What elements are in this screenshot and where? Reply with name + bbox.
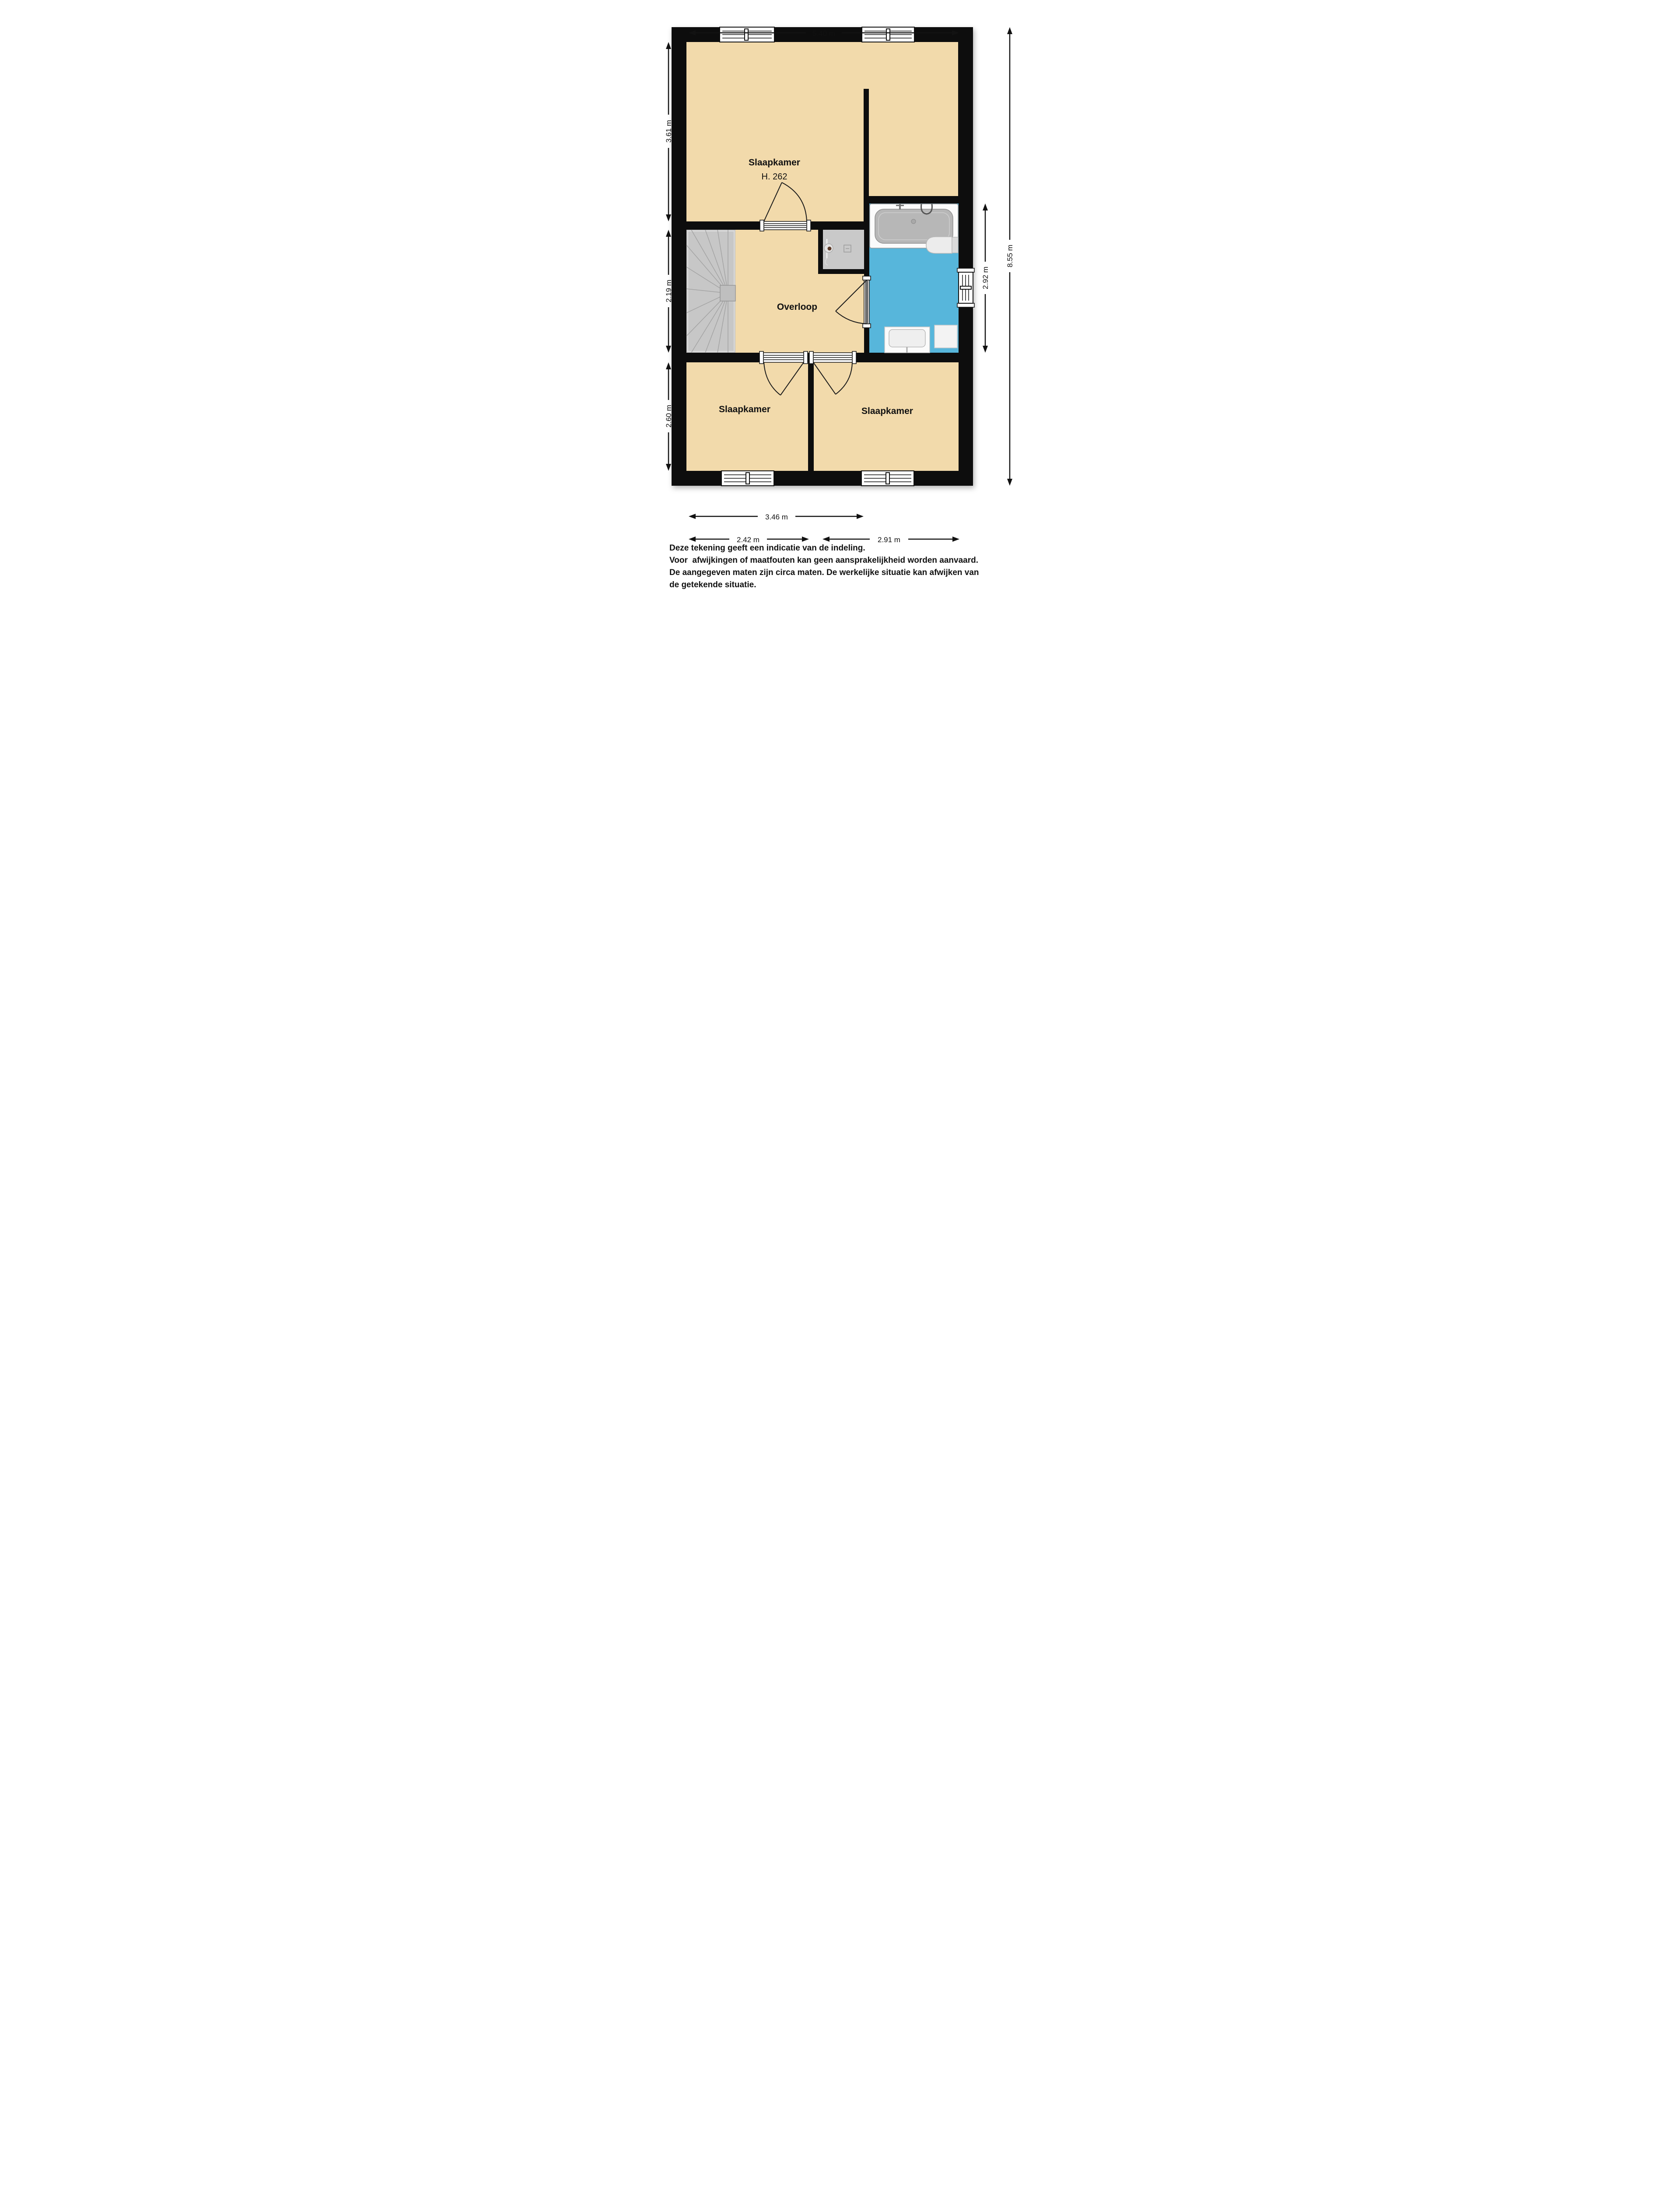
- washbasin: [885, 327, 930, 353]
- dim-bottom-left-total: 3.46 m: [689, 513, 864, 521]
- dim-left-top-label: 3.61 m: [665, 120, 673, 143]
- dim-bottom-left: 2.42 m: [689, 536, 809, 544]
- dim-right-bath-label: 2.92 m: [981, 266, 990, 289]
- bedroom-main-label: Slaapkamer: [749, 158, 800, 168]
- shower-head-center: [828, 247, 832, 251]
- dim-right-total: 8.55 m: [1006, 27, 1014, 486]
- bedroom-left-floor: [686, 362, 808, 471]
- toilet: [926, 237, 958, 253]
- dim-top-width-label: 5.40 m: [812, 29, 835, 38]
- landing-label: Overloop: [777, 302, 817, 312]
- window-bottom-right: [861, 471, 914, 486]
- wall-shower-left: [818, 230, 823, 269]
- bedroom-main-height-note: H. 262: [762, 172, 787, 182]
- staircase-landing: [720, 285, 735, 301]
- footer-line-3: De aangegeven maten zijn circa maten. De…: [669, 568, 979, 577]
- footer-line-2: Voor afwijkingen of maatfouten kan geen …: [669, 556, 978, 565]
- wall-bathroom-left-upper: [864, 230, 869, 260]
- footer-line-4: de getekende situatie.: [669, 580, 756, 589]
- toilet-bowl-icon: [926, 237, 952, 253]
- dim-left-middle-label: 2.19 m: [665, 280, 673, 302]
- wall-bedroom-divider: [864, 89, 869, 196]
- footer-line-1: Deze tekening geeft een indicatie van de…: [669, 543, 865, 553]
- bedroom-main-floor-left: [686, 196, 864, 221]
- dim-bottom-left-label: 2.42 m: [737, 536, 759, 544]
- dim-right-bath: 2.92 m: [981, 203, 990, 353]
- dim-bottom-left-total-label: 3.46 m: [765, 513, 788, 521]
- wall-shower-bottom: [818, 269, 864, 274]
- wall-bottom-bedrooms-divider: [808, 362, 814, 471]
- bedroom-right-label: Slaapkamer: [861, 406, 913, 416]
- window-bathroom-right: [957, 268, 974, 307]
- building-shell: [672, 27, 973, 486]
- bathtub-drain-icon: [911, 219, 916, 224]
- bedroom-right-floor: [814, 362, 959, 471]
- washbasin-bowl-icon: [889, 330, 925, 347]
- wall-bathroom-left-lower: [864, 324, 869, 353]
- dim-bottom-right: 2.91 m: [822, 536, 959, 544]
- dim-bottom-right-label: 2.91 m: [878, 536, 900, 544]
- bedroom-left-label: Slaapkamer: [719, 404, 770, 414]
- floorplan-page: Slaapkamer H. 262 Overloop Slaapkamer Sl…: [630, 0, 1050, 594]
- bathroom-cabinet-icon: [934, 325, 957, 348]
- toilet-tank-icon: [952, 237, 958, 253]
- dim-right-total-label: 8.55 m: [1006, 245, 1014, 267]
- window-top-left: [720, 27, 774, 42]
- bathtub-tap-spout: [899, 204, 901, 210]
- dim-left-bottom-label: 2.60 m: [665, 405, 673, 428]
- footer-disclaimer: Deze tekening geeft een indicatie van de…: [669, 543, 979, 589]
- window-top-right: [862, 27, 914, 42]
- window-bottom-left: [721, 471, 774, 486]
- bedroom-main-floor: [686, 42, 958, 196]
- floor-plan-svg: Slaapkamer H. 262 Overloop Slaapkamer Sl…: [630, 0, 1050, 594]
